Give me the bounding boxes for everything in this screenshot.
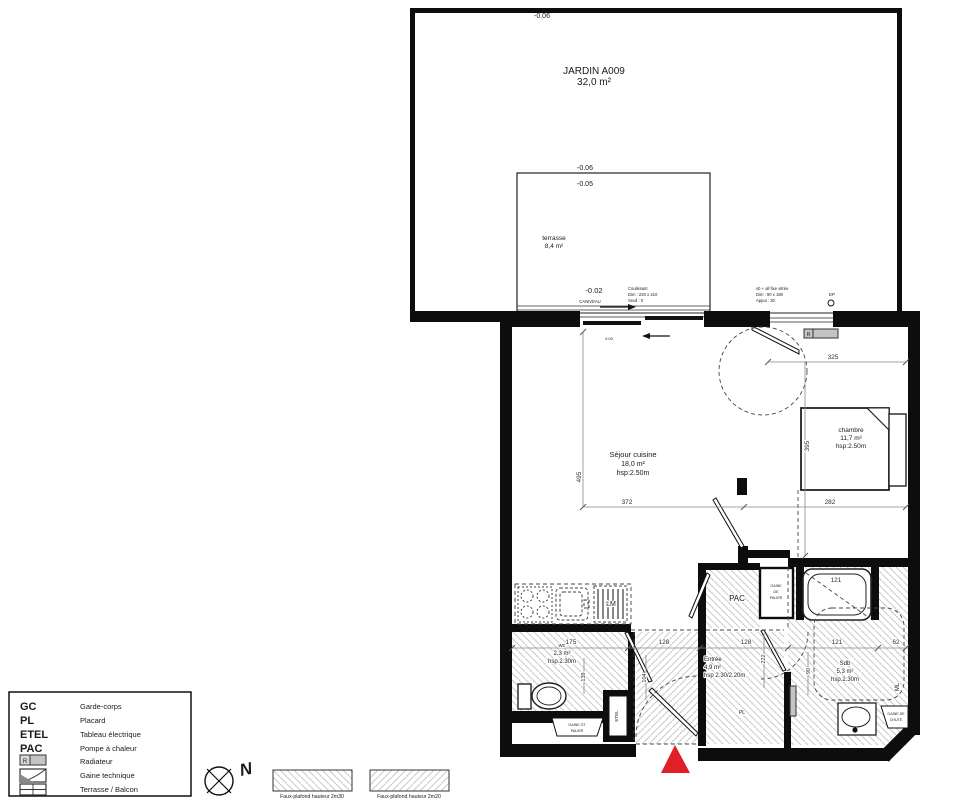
window-annot-l3: Appui : 30 [756,298,776,303]
dim-128a: 128 [659,639,670,646]
dim-121-tub: 121 [831,577,842,584]
hatch-label-2m30: Faux-plafond hauteur 2m30 [280,794,344,800]
legend-label-pl: Placard [80,716,105,725]
entrance-marker [661,745,690,773]
legend-box: GC Garde-corps PL Placard ETEL Tableau é… [9,692,191,796]
window-annot-l1: vb + all fixe vitrée [756,286,789,291]
terrace-legend-icon [20,784,46,795]
dim-282: 282 [825,499,836,506]
bedroom-window [770,311,833,327]
north-label: N [238,759,255,780]
dim-175: 175 [566,639,577,646]
sejour-height: hsp:2.50m [617,470,650,477]
sdb-name: Sdb [840,661,851,667]
dim-222: 222 [761,654,767,663]
closet-label: PL [739,710,745,716]
legend-abbr-gc: GC [20,701,37,713]
terrace-elevation-outside: -0.06 [577,165,593,172]
chambre-area: 11,7 m² [840,435,862,442]
radiator-vertical [790,686,796,716]
legend-label-etel: Tableau électrique [80,730,141,739]
entree-height: hsp 2.30/2.20m [704,673,745,679]
dim-395: 395 [804,440,811,451]
sejour-area: 18,0 m² [621,461,645,468]
sdb-height: hsp.2.30m [831,677,859,683]
toilet-icon [518,683,566,709]
floor-level: 0.00 [605,336,614,341]
ceiling-hatch-legend: Faux-plafond hauteur 2m30 Faux-plafond h… [273,770,449,800]
legend-label-pac: Pompe à chaleur [80,744,137,753]
bedroom-door-swing [719,327,807,415]
gaine-legend-icon [20,769,46,782]
window-annot-l2: Dim : 90 x 180 [756,292,784,297]
legend-label-gc: Garde-corps [80,702,122,711]
bedroom-door-leaf [752,326,799,354]
wc-name: wc [558,643,566,649]
duct-right-l2: CHUTE [890,718,903,722]
floor-plan-drawing: R LM [0,0,967,800]
compass: N [205,759,255,795]
dim-104: 104 [642,673,648,682]
radiator-r-label: R [807,332,811,338]
duct-right-l1: GAINE DE [887,712,905,716]
hatch-label-2m20: Faux-plafond hauteur 2m20 [377,794,441,800]
wc-area: 2,3 m² [553,651,570,657]
chambre-name: chambre [838,427,864,434]
terrace-name: terrasse [542,235,566,242]
pac-label: PAC [729,594,745,603]
dim-62: 62 [892,639,900,646]
radiator: R [804,329,838,338]
washbasin-icon [838,703,876,735]
duct-left-box: GAINE GT PALIER [552,718,603,736]
sdb-area: 5,3 m² [836,669,853,675]
legend-abbr-pl: PL [20,715,34,727]
electrical-panel-label: ETEL [614,710,619,722]
sink-icon [556,588,589,620]
dim-128b: 128 [741,639,752,646]
sliding-bay-door [580,304,704,339]
sliding-annot-l1: Coulissant [628,286,648,291]
duct-center-l3: PALIER [770,596,783,600]
duct-center-l1: GAINE [770,584,782,588]
chambre-height: hsp:2.50m [836,443,866,450]
corridor-door-leaf [713,498,744,548]
legend-abbr-pac: PAC [20,743,42,755]
floor-plan-page: R LM [0,0,967,800]
garden-elevation-top: -0.06 [534,13,550,20]
legend-label-radiateur: Radiateur [80,757,113,766]
legend-label-gaine: Gaine technique [80,771,135,780]
dim-121: 121 [832,639,843,646]
radiator-legend-icon: R [20,755,46,765]
sliding-annot-l3: Seuil : 0 [628,298,644,303]
duct-left-l1: GAINE GT [568,723,586,727]
terrace-area: 8,4 m² [545,243,564,250]
legend-abbr-r: R [23,759,28,765]
drain-label: CANIVEAU [579,299,600,304]
legend-label-terrasse: Terrasse / Balcon [80,785,138,794]
hatch-swatch-2m20 [370,770,449,791]
washing-machine-label: ML [895,682,901,691]
terrace-elevation-inside: -0.05 [577,181,593,188]
dim-372: 372 [622,499,633,506]
garden-area: 32,0 m² [577,77,612,88]
electrical-panel-box: ETEL [609,696,627,736]
entree-name: Entrée [704,657,722,663]
dim-325: 325 [828,354,839,361]
terrace-elevation-threshold: -0.02 [585,286,602,295]
rainwater-pipe-icon [828,300,834,306]
dim-495: 495 [576,471,583,482]
sliding-annot-l2: Dim : 220 x 210 [628,292,658,297]
cooktop-icon [518,587,552,622]
garden-labels: -0.06 JARDIN A009 32,0 m² -0.06 -0.05 te… [534,13,835,306]
dim-139: 139 [581,672,587,681]
legend-abbr-etel: ETEL [20,729,48,741]
entree-area: 4,9 m² [704,665,721,671]
sejour-name: Séjour cuisine [609,450,656,459]
duct-center-l2: DE [774,590,780,594]
duct-left-l2: PALIER [571,729,584,733]
hatch-swatch-2m30 [273,770,352,791]
bedside-table-icon [889,414,906,486]
dishwasher-label: LM [606,601,616,608]
rainwater-pipe-label: EP [829,292,835,297]
garden-title: JARDIN A009 [563,66,625,77]
dim-90: 90 [806,668,812,674]
wc-height: hsp.2.30m [548,659,576,665]
